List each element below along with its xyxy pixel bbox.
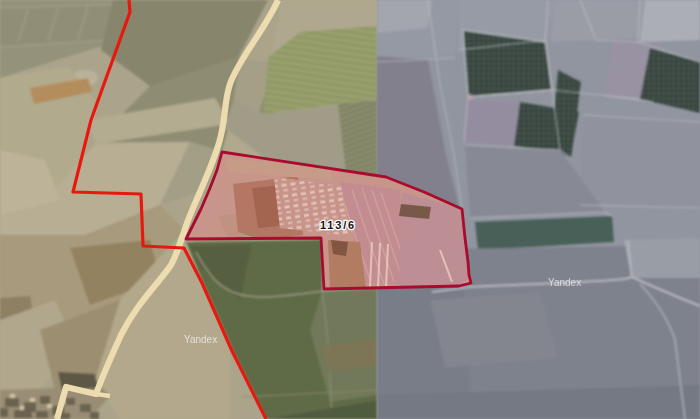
svg-text:113/6: 113/6	[320, 219, 356, 231]
svg-text:Yandex: Yandex	[184, 334, 217, 345]
svg-text:Yandex: Yandex	[548, 277, 581, 288]
